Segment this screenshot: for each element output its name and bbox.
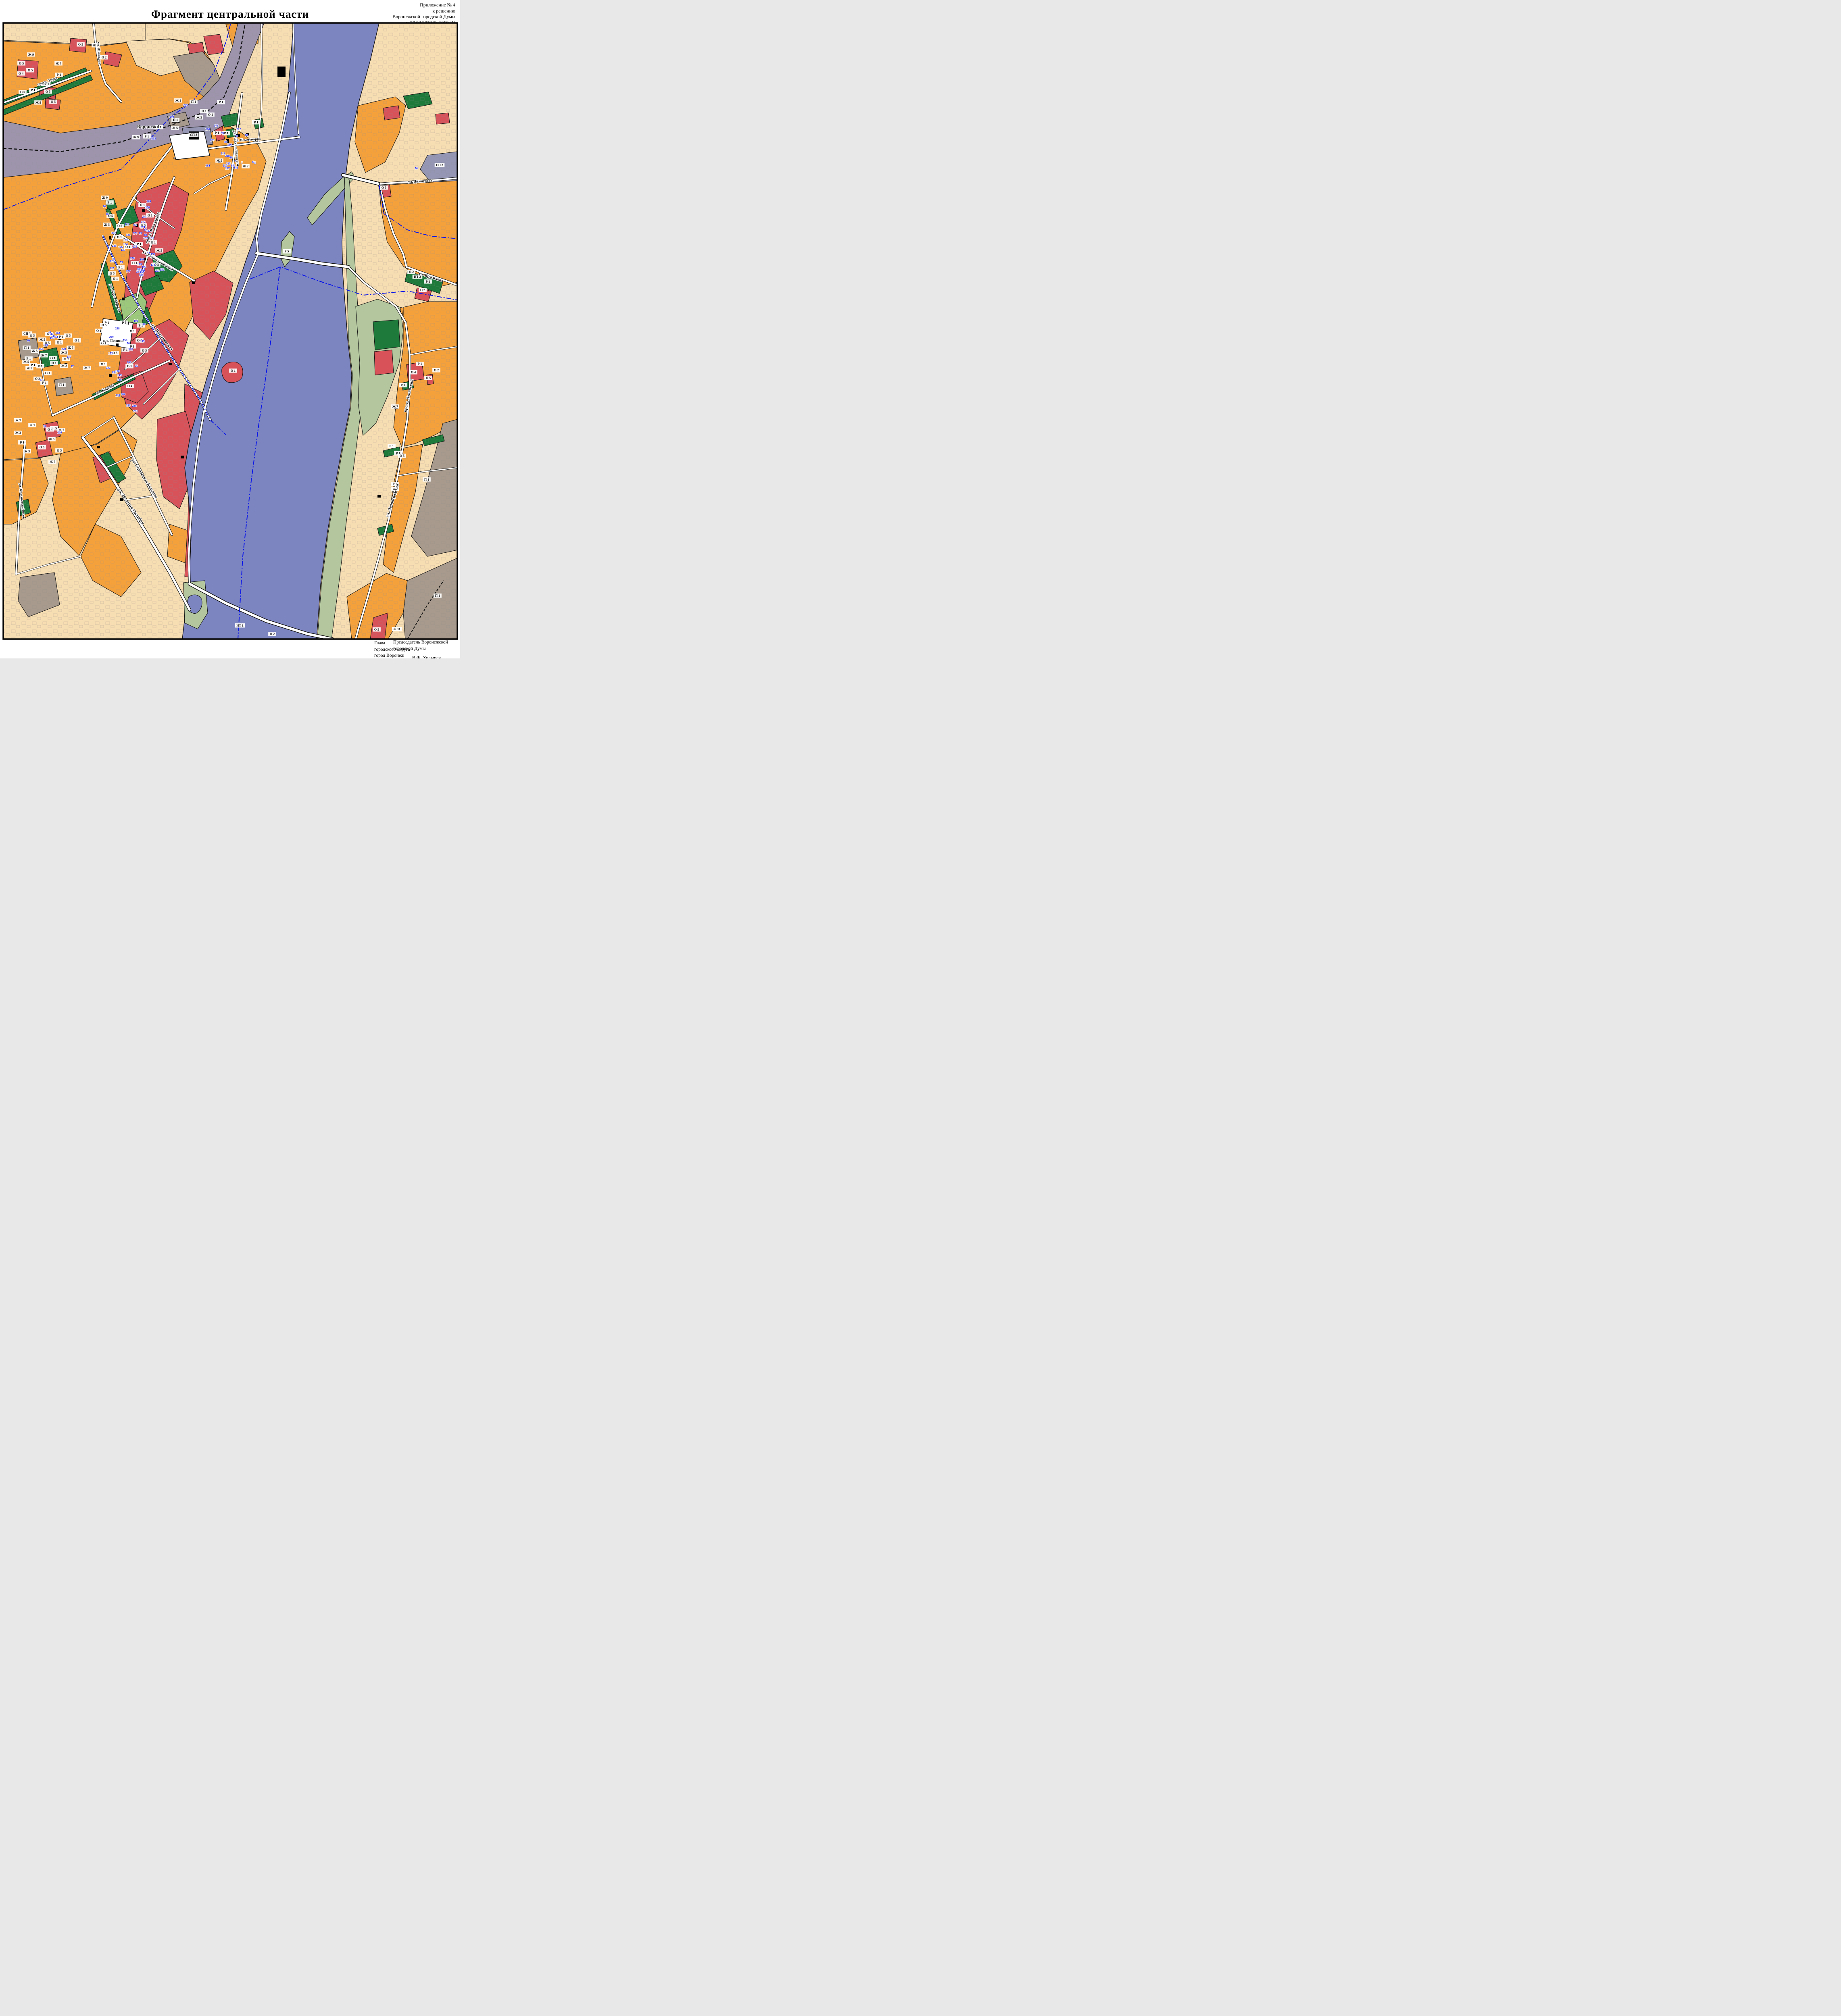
svg-text:О 5: О 5	[110, 272, 115, 275]
svg-text:О 3: О 3	[382, 186, 386, 190]
zone-label: О 5	[44, 90, 52, 94]
parcel-number: 179	[210, 138, 215, 142]
svg-text:О 1: О 1	[231, 369, 236, 373]
zone-label: П 1	[423, 477, 431, 482]
zone-label: Ж 1	[174, 98, 182, 103]
svg-text:О 1: О 1	[140, 203, 145, 207]
zone-label: П 1	[190, 100, 198, 104]
svg-text:О 1: О 1	[113, 277, 118, 281]
zone-label: Ж 5	[215, 158, 223, 163]
svg-text:ИТ 1: ИТ 1	[236, 624, 244, 627]
zone-label: О 1	[73, 338, 81, 343]
svg-text:О 5: О 5	[28, 69, 33, 72]
parcel-number: 246	[112, 244, 117, 248]
svg-text:Р 1: Р 1	[254, 121, 259, 124]
zone-label: Ж 5	[155, 248, 163, 253]
parcel-number: 100	[133, 319, 138, 323]
parcel-number: 225	[183, 103, 188, 107]
zone-label: П 1	[58, 383, 66, 387]
zone-label: П 1	[434, 594, 442, 598]
zone-label: Р 1	[388, 444, 396, 448]
zone-label: О 5	[424, 376, 432, 380]
svg-text:О 5: О 5	[57, 449, 62, 452]
zone-label: Р 1	[252, 120, 260, 125]
zone-label: О 1	[49, 356, 57, 360]
svg-text:Ж 3: Ж 3	[24, 450, 30, 453]
parcel-number: 120	[115, 394, 120, 397]
svg-text:Ж 5: Ж 5	[172, 126, 178, 130]
svg-text:П 1: П 1	[435, 594, 440, 598]
parcel-number: 86	[103, 204, 106, 208]
zone-label: О 2	[268, 632, 276, 636]
zone-label: Ж 2	[242, 164, 250, 169]
parcel-number: 272	[141, 220, 146, 224]
parcel-number: 271	[142, 215, 147, 219]
svg-text:Ж 5: Ж 5	[104, 223, 110, 227]
svg-text:О 1: О 1	[132, 261, 137, 265]
zone-label: О 5	[64, 333, 72, 338]
svg-text:Ж 7: Ж 7	[56, 62, 61, 65]
svg-text:Ж 5: Ж 5	[68, 346, 73, 350]
zone-label: О 5	[19, 90, 27, 94]
svg-text:О 5: О 5	[51, 100, 56, 104]
zone-label: О 5	[100, 323, 108, 327]
svg-text:О 5: О 5	[40, 446, 44, 449]
parcel-number: 166	[39, 347, 44, 351]
zone-label: Р 3	[120, 321, 128, 325]
svg-text:О 5: О 5	[400, 454, 404, 458]
svg-text:Р 3: Р 3	[122, 321, 127, 325]
zone-label: Ж 7	[14, 418, 22, 423]
svg-text:Ж 5: Ж 5	[156, 249, 162, 252]
parcel-number: 200	[139, 273, 144, 277]
zone-label: Ж 5	[67, 346, 75, 350]
svg-text:О 5: О 5	[66, 334, 71, 337]
parcel-number: 153	[108, 352, 113, 355]
zone-label: О 1	[146, 213, 154, 218]
zone-label: Р 1	[217, 100, 225, 104]
zone-label: Ж 9	[34, 100, 42, 105]
zone-label: Р 1	[399, 383, 407, 387]
svg-text:О 2: О 2	[270, 632, 275, 636]
place-label: пл. Ленина	[103, 339, 123, 343]
parcel-number: 303	[151, 137, 156, 140]
parcel-number: 284	[121, 392, 125, 396]
parcel-number: 25	[135, 364, 138, 368]
zone-label: СП 3	[189, 133, 199, 137]
zone-label: Ж 7	[83, 366, 91, 370]
zone-label: ИТ 1	[235, 623, 245, 628]
svg-text:Ж 5: Ж 5	[49, 437, 54, 441]
svg-text:О 1: О 1	[151, 241, 156, 244]
zone-label: О 1	[44, 371, 52, 375]
svg-text:Ж 3: Ж 3	[15, 431, 21, 435]
svg-text:Р 1: Р 1	[108, 201, 112, 204]
parcel-number: 275	[132, 245, 137, 248]
parcel-number: 122	[125, 223, 129, 226]
parcel-number: 91	[221, 131, 224, 135]
parcel-number: 49	[142, 323, 146, 326]
svg-text:О 4: О 4	[19, 72, 23, 75]
zone-label: О 1	[229, 369, 237, 373]
parcel-number: 162	[55, 331, 60, 335]
zone-label: О 1	[50, 361, 58, 365]
svg-text:О 5: О 5	[374, 628, 379, 631]
parcel-number: 128	[110, 259, 115, 263]
svg-text:Ж 9: Ж 9	[35, 101, 41, 104]
parcel-number: 269	[146, 200, 151, 203]
zone-label: О 4	[46, 427, 54, 432]
parcel-number: 83	[139, 231, 142, 235]
parcel-number: 150	[115, 369, 120, 373]
svg-text:О 1: О 1	[117, 235, 122, 239]
parcel-number: 141	[234, 166, 238, 169]
zone-label: О 4	[17, 71, 25, 76]
parcel-number: 145	[140, 339, 145, 343]
svg-text:Р 1: Р 1	[401, 383, 405, 387]
parcel-number: 276	[130, 256, 135, 260]
zone-label: Р 1	[143, 134, 151, 139]
svg-text:Р 1: Р 1	[59, 335, 64, 339]
svg-text:Ж 7: Ж 7	[41, 354, 47, 357]
zone-label: Р 1	[36, 364, 44, 369]
parcel-number: 219	[221, 152, 225, 155]
parcel-number: 50	[127, 342, 130, 345]
svg-text:Ж 9: Ж 9	[133, 135, 139, 139]
zone-label: О 5	[26, 68, 34, 73]
svg-text:О 1: О 1	[52, 361, 56, 365]
zone-label: О 5	[55, 448, 63, 453]
zone-label: Ж 3	[23, 449, 31, 454]
zone-label: О 2	[432, 368, 440, 373]
svg-text:О 4: О 4	[127, 384, 132, 388]
zone-label: Ж 7	[54, 61, 63, 66]
svg-text:О 2: О 2	[409, 270, 414, 274]
parcel-number: 273	[133, 231, 138, 235]
zone-label: Ж 7	[48, 460, 56, 464]
svg-text:О 5: О 5	[78, 43, 83, 46]
svg-text:О 1: О 1	[101, 362, 106, 366]
parcel-number: 283	[126, 404, 131, 407]
parcel-number: 216	[227, 143, 232, 146]
parcel-number: 212	[236, 127, 241, 131]
zone-label: Ж 5	[103, 223, 111, 227]
parcel-number: 96	[27, 339, 30, 342]
zone-label: О 1	[115, 235, 123, 240]
svg-text:О 1: О 1	[75, 339, 79, 342]
svg-text:Ж 5: Ж 5	[23, 360, 29, 364]
parcel-number: 149	[117, 373, 122, 377]
svg-text:СП 3: СП 3	[190, 133, 197, 137]
svg-text:Р 1: Р 1	[119, 266, 123, 269]
parcel-number: 87	[106, 212, 109, 216]
zone-label: Ж 9	[132, 135, 140, 140]
parcel-number: 237	[67, 355, 71, 358]
parcel-number: 88	[245, 133, 248, 137]
svg-text:О 1: О 1	[208, 113, 213, 117]
svg-text:Р 1: Р 1	[42, 381, 47, 385]
parcel-number: 270	[145, 206, 150, 209]
parcel-number: 247	[111, 231, 116, 235]
zone-label: Р 5	[283, 249, 291, 254]
svg-text:Р 1: Р 1	[390, 444, 394, 448]
svg-text:О 1: О 1	[96, 329, 101, 333]
svg-text:О 5: О 5	[30, 334, 35, 337]
svg-text:Р 1: Р 1	[38, 364, 43, 368]
svg-text:О 5: О 5	[20, 90, 25, 94]
svg-text:О 4: О 4	[411, 371, 416, 374]
zone-label: О 1	[149, 240, 157, 245]
parcel-number: 127	[110, 267, 115, 270]
parcel-number: 148	[117, 378, 122, 381]
parcel-number: 85	[133, 223, 137, 227]
svg-text:Ж 7: Ж 7	[29, 423, 35, 427]
svg-text:Р 1: Р 1	[418, 362, 422, 366]
svg-text:П 1: П 1	[424, 478, 429, 481]
zone-label: Ж 5	[25, 366, 33, 371]
parcel-number: 195	[142, 265, 146, 269]
parcel-number: 302	[128, 348, 133, 351]
zone-label: Ж 9	[27, 52, 35, 57]
zone-label: Ж 5	[171, 126, 179, 130]
svg-text:О 5: О 5	[426, 376, 431, 380]
parcel-number: 230	[132, 404, 137, 408]
zone-label: О 4	[409, 370, 417, 375]
zone-label: Ж 9	[101, 196, 109, 200]
parcel-number: 6	[252, 160, 254, 164]
parcel-number: 217	[225, 167, 230, 170]
parcel-number: 253	[155, 269, 160, 273]
svg-text:Ж 9: Ж 9	[102, 196, 108, 200]
svg-text:О 1: О 1	[57, 341, 62, 344]
zone-label: О 1	[95, 329, 103, 333]
official-title-line: Председатель Воронежской	[393, 639, 460, 646]
zone-label: О 5	[140, 348, 148, 353]
parcel-number: 173	[150, 263, 155, 267]
svg-text:Ж 5: Ж 5	[217, 159, 222, 162]
svg-text:Р 1: Р 1	[123, 348, 128, 352]
svg-text:Ж 5: Ж 5	[61, 351, 67, 354]
zone-label: Ж 5	[195, 115, 203, 120]
parcel-number: 277	[126, 269, 131, 273]
svg-text:Ж 5: Ж 5	[196, 116, 202, 119]
svg-text:Р 1: Р 1	[57, 73, 61, 77]
parcel-number: 293	[169, 115, 174, 119]
parcel-number: 243	[127, 360, 131, 364]
svg-text:О 2: О 2	[102, 56, 106, 59]
svg-text:Р 1: Р 1	[137, 242, 142, 246]
map-sheet: Приложение № 4 к решению Воронежской гор…	[0, 0, 460, 658]
svg-text:Ж 5: Ж 5	[32, 349, 38, 353]
svg-text:П 1: П 1	[191, 100, 196, 104]
parcel-number: 231	[133, 409, 138, 413]
zone-label: О 1	[206, 112, 215, 117]
parcel-number: 7	[241, 161, 243, 165]
place-label: Воронеж 1	[137, 124, 160, 129]
parcel-number: 298	[115, 327, 120, 330]
parcel-number: 56	[415, 167, 418, 170]
parcel-number: 17	[71, 364, 74, 368]
zone-label: О 2	[407, 270, 415, 274]
svg-text:Ж 2: Ж 2	[243, 165, 248, 168]
parcel-number: 123	[123, 238, 128, 242]
zone-label: Ж 5	[22, 360, 30, 364]
official-signature: В.Ф. Ходырев	[393, 654, 460, 658]
zone-label: Р 1	[18, 440, 26, 445]
zone-label: О 5	[17, 61, 25, 66]
svg-text:О 2: О 2	[420, 288, 425, 292]
svg-text:Р 1: Р 1	[219, 100, 223, 104]
zone-label: О 5	[108, 271, 116, 276]
zone-label: Ж 5	[60, 350, 68, 355]
zone-label: Р 1	[57, 335, 65, 339]
svg-text:Р 1: Р 1	[31, 88, 35, 92]
zone-label: СП 3	[435, 163, 445, 167]
svg-text:Ж 7: Ж 7	[392, 405, 398, 408]
parcel-number: 41	[52, 334, 56, 338]
parcel-number: 180	[205, 127, 210, 131]
zone-label: О 5	[373, 627, 381, 632]
parcel-number: 198	[140, 258, 144, 261]
parcel-number: 165	[43, 344, 48, 347]
zone-label: О 1	[111, 277, 119, 281]
svg-text:О 4: О 4	[48, 428, 52, 431]
zone-label: Ж 11	[392, 627, 402, 631]
parcel-number: 10	[229, 156, 233, 159]
svg-text:Ж 7: Ж 7	[50, 460, 55, 464]
zone-label: О 1	[55, 340, 63, 345]
svg-text:О 5: О 5	[46, 90, 50, 94]
svg-text:СП 3: СП 3	[436, 163, 443, 167]
svg-text:Ж 11: Ж 11	[393, 627, 400, 631]
svg-text:П 1: П 1	[59, 383, 64, 387]
parcel-number: 75	[120, 260, 123, 264]
parcel-number: 184	[205, 164, 210, 167]
zone-label: Ж 7	[28, 423, 36, 427]
zone-label: О 1	[125, 364, 133, 369]
zone-label: Ж 2	[60, 364, 68, 368]
svg-text:Р 5: Р 5	[285, 250, 289, 253]
zone-label: Р 1	[416, 362, 424, 366]
parcel-number: 226	[57, 431, 62, 434]
parcel-number: 227	[106, 366, 111, 370]
parcel-number: 299	[109, 335, 114, 339]
svg-text:О 5: О 5	[142, 349, 147, 352]
parcel-number: 218	[225, 154, 230, 158]
zone-label: О 3	[380, 185, 388, 190]
svg-text:О 5: О 5	[19, 62, 24, 65]
svg-text:Р 1: Р 1	[426, 280, 430, 283]
zone-label: О 5	[398, 454, 406, 458]
zone-label: Ж 7	[40, 353, 48, 358]
svg-text:Р 1: Р 1	[224, 131, 229, 135]
parcel-number: 199	[137, 262, 142, 266]
svg-text:О 1: О 1	[50, 356, 55, 360]
zone-label: Р 1	[106, 200, 114, 205]
svg-text:Ж 2: Ж 2	[61, 364, 67, 368]
zone-label: О 1	[99, 362, 107, 367]
zone-label: П 1	[23, 346, 31, 350]
svg-text:О 1: О 1	[130, 329, 135, 333]
svg-text:Р 1: Р 1	[145, 135, 149, 138]
parcel-number: 5	[254, 161, 256, 165]
parcel-number: 178	[214, 124, 219, 127]
parcel-number: 39	[43, 425, 46, 428]
zone-label: О 1	[128, 329, 136, 333]
zone-label: Р 1	[424, 279, 432, 284]
svg-text:Ж 7: Ж 7	[84, 366, 90, 370]
zone-label: Ж 5	[48, 437, 56, 442]
parcel-number: 121	[126, 233, 131, 237]
zone-label: О 5	[49, 100, 57, 104]
official-right: Председатель Воронежской городской Думы …	[393, 639, 460, 658]
zone-label: О 5	[116, 224, 124, 228]
svg-text:Ж 9: Ж 9	[28, 53, 34, 56]
zone-label: О 4	[126, 384, 134, 388]
svg-text:О 1: О 1	[202, 109, 206, 113]
svg-text:Ж 1: Ж 1	[175, 99, 181, 102]
svg-text:Р 1: Р 1	[215, 131, 219, 135]
svg-text:П 1: П 1	[24, 346, 29, 350]
svg-text:О 1: О 1	[148, 214, 152, 217]
svg-text:Р 1: Р 1	[20, 441, 25, 444]
svg-text:П 1: П 1	[173, 118, 178, 122]
zone-label: О 1	[200, 109, 208, 113]
zone-label: Ж 7	[391, 404, 399, 409]
svg-text:О 5: О 5	[102, 323, 106, 327]
parcel-number: 228	[61, 347, 66, 351]
svg-text:О 1: О 1	[45, 371, 50, 375]
parcel-number: 124	[123, 242, 128, 246]
parcel-number: 125	[121, 248, 125, 252]
zone-label: Р 1	[213, 131, 221, 135]
svg-text:О 1: О 1	[127, 364, 132, 368]
svg-text:О 5: О 5	[117, 224, 122, 228]
zone-label: Ж 3	[14, 431, 22, 435]
svg-text:Ж 7: Ж 7	[15, 419, 21, 422]
zone-label: О 5	[77, 42, 85, 47]
zone-label: Ж 5	[31, 349, 39, 353]
svg-text:О 2: О 2	[434, 369, 439, 372]
zone-label: О 2	[419, 288, 427, 292]
svg-text:Ж 5: Ж 5	[27, 367, 32, 370]
zone-label: О 5	[38, 445, 46, 450]
svg-text:О 5: О 5	[113, 351, 117, 355]
zoning-map-canvas: Ж 9О 5О 5О 4Ж 7Р 1ИТ 1Р 1О 5О 5О 5Ж 9О 5…	[0, 0, 460, 658]
parcel-number: 252	[160, 268, 165, 271]
zone-label: О 5	[28, 333, 36, 338]
zone-label: Р 1	[117, 265, 125, 270]
parcel-number: 92	[40, 378, 43, 382]
official-title-line: городской Думы	[393, 646, 460, 652]
zone-label: Р 1	[29, 88, 37, 92]
